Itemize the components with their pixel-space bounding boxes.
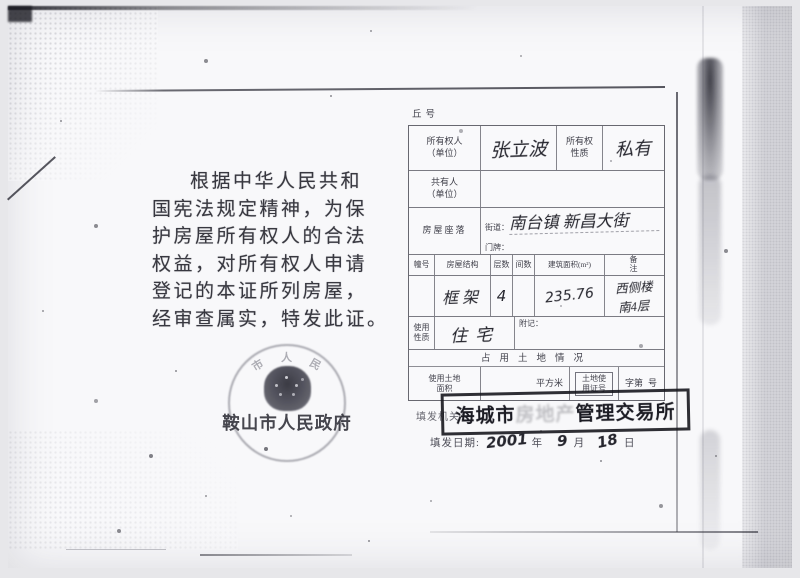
preamble-line: 护房屋所有权人的合法 — [152, 223, 408, 251]
preamble-line: 国宪法规定精神，为保 — [152, 196, 408, 224]
row-building-values: 框架 4 235.76 西侧楼 南4层 — [409, 276, 664, 317]
property-form-table: 所有权人（单位） 张立波 所有权性质 私有 共有人（单位） 房屋座落 — [408, 125, 665, 401]
land-unit-label: 平方米 — [536, 378, 563, 390]
area-handwritten: 235.76 — [544, 285, 594, 306]
header-building-no: 幢号 — [413, 261, 431, 270]
header-rooms-cell: 间数 — [513, 255, 535, 275]
header-structure-cell: 房屋结构 — [435, 255, 491, 275]
floors-value-cell: 4 — [491, 276, 513, 316]
street-value-handwritten: 南台镇 新昌大街 — [509, 208, 660, 234]
issue-month-unit: 月 — [574, 435, 586, 450]
co-owner-label: 共有人（单位） — [425, 177, 465, 200]
location-label: 房屋座落 — [422, 225, 466, 237]
owner-label: 所有权人（单位） — [425, 136, 465, 159]
issue-date-line: 填发日期: 2001 年 9 月 18 日 — [430, 432, 635, 450]
hao-label: 号 — [648, 378, 657, 390]
preamble-line: 登记的本证所列房屋， — [152, 278, 408, 306]
ownership-nature-label: 所有权性质 — [565, 136, 595, 159]
national-emblem-icon — [264, 366, 311, 411]
ownership-nature-handwritten: 私有 — [614, 134, 651, 162]
issue-month-handwritten: 9 — [557, 432, 569, 451]
usage-label: 使用性质 — [413, 323, 431, 343]
issue-date-label: 填发日期: — [430, 435, 480, 450]
header-area: 建筑面积(m²) — [548, 261, 591, 269]
co-owner-label-cell: 共有人（单位） — [409, 171, 481, 207]
co-owner-value-cell — [481, 171, 662, 207]
structure-handwritten: 框架 — [442, 283, 483, 308]
issue-day-handwritten: 18 — [595, 430, 619, 452]
issue-day-unit: 日 — [624, 435, 636, 450]
preamble-line: 权益，对所有权人申请 — [152, 251, 408, 279]
ownership-nature-value-cell: 私有 — [603, 126, 662, 170]
header-rooms: 间数 — [516, 261, 532, 270]
land-area-label: 使用土地面积 — [428, 374, 462, 394]
emblem-stars — [285, 376, 288, 379]
scanned-certificate-page: 根据中华人民共和 国宪法规定精神，为保 护房屋所有权人的合法 权益，对所有权人申… — [0, 0, 800, 578]
stamp-text-middle: 房地产 — [515, 398, 576, 426]
seal-government-name: 鞍山市人民政府 — [220, 410, 354, 435]
issue-year-handwritten: 2001 — [485, 430, 528, 452]
floors-handwritten: 4 — [497, 287, 507, 305]
header-area-cell: 建筑面积(m²) — [535, 255, 605, 275]
scan-artifact-bottom-mark-faint — [66, 549, 166, 550]
issue-year-unit: 年 — [532, 435, 544, 450]
location-label-cell: 房屋座落 — [409, 208, 481, 254]
header-building-no-cell: 幢号 — [409, 255, 435, 275]
scan-artifact-speckles — [0, 0, 2, 2]
owner-value-cell: 张立波 — [481, 126, 557, 170]
row-co-owner: 共有人（单位） — [409, 171, 664, 208]
plate-label: 门牌： — [485, 243, 509, 252]
preamble-line: 根据中华人民共和 — [152, 168, 408, 196]
seal-arc-char: 人 — [281, 349, 292, 365]
row-owner: 所有权人（单位） 张立波 所有权性质 私有 — [409, 126, 664, 171]
header-remarks: 备注 — [605, 256, 662, 274]
remarks-line2-handwritten: 南4层 — [617, 295, 650, 316]
scan-artifact-topleft-noise — [8, 6, 158, 181]
note-cell: 附记： — [515, 317, 662, 349]
scan-artifact-bottomleft-noise — [8, 430, 238, 550]
rooms-value-cell — [513, 276, 535, 316]
government-seal: 市 人 民 鞍山市人民政府 — [228, 344, 346, 462]
scan-artifact-bottom-mark — [200, 554, 352, 556]
row-location: 房屋座落 街道： 南台镇 新昌大街 门牌： — [409, 208, 664, 255]
remarks-value-cell: 西侧楼 南4层 — [605, 276, 662, 316]
header-floors-cell: 层数 — [491, 255, 513, 275]
land-section-title: 占用土地情况 — [409, 350, 664, 366]
row-building-headers: 幢号 房屋结构 层数 间数 建筑面积(m²) 备注 — [409, 255, 664, 276]
stamp-text-suffix: 管理交易所 — [575, 396, 676, 425]
street-label: 街道： — [485, 223, 509, 233]
usage-label-cell: 使用性质 — [409, 317, 435, 349]
location-value-cell: 街道： 南台镇 新昌大街 门牌： — [481, 208, 662, 254]
row-usage: 使用性质 住宅 附记： — [409, 317, 664, 350]
building-no-value-cell — [409, 276, 435, 316]
usage-value-cell: 住宅 — [435, 317, 515, 349]
constitution-preamble-text: 根据中华人民共和 国宪法规定精神，为保 护房屋所有权人的合法 权益，对所有权人申… — [152, 168, 408, 333]
scan-artifact-smudge-middle — [699, 175, 721, 325]
exchange-office-stamp: 海城市 房地产 管理交易所 — [441, 388, 691, 435]
preamble-line: 经审查属实，特发此证。 — [152, 306, 408, 334]
scan-artifact-top-edge — [8, 6, 478, 10]
area-value-cell: 235.76 — [535, 276, 605, 316]
zi-label: 字第 — [625, 378, 643, 390]
row-land-title: 占用土地情况 — [409, 350, 664, 366]
plot-number-label: 丘号 — [412, 106, 439, 120]
usage-handwritten: 住宅 — [449, 320, 500, 347]
page-right-edge-line — [676, 92, 678, 532]
structure-value-cell: 框架 — [435, 276, 491, 316]
scan-artifact-corner-blob — [8, 6, 32, 22]
owner-name-handwritten: 张立波 — [490, 134, 548, 163]
note-label: 附记： — [519, 319, 543, 329]
scan-artifact-right-band-grain — [742, 6, 792, 568]
stamp-text-prefix: 海城市 — [455, 400, 516, 428]
header-floors: 层数 — [494, 261, 510, 270]
page-bottom-edge-line — [430, 531, 758, 533]
header-structure: 房屋结构 — [447, 261, 479, 270]
header-remarks-cell: 备注 — [605, 255, 662, 275]
owner-label-cell: 所有权人（单位） — [409, 126, 481, 170]
scan-artifact-smudge-top — [697, 58, 723, 180]
ownership-nature-label-cell: 所有权性质 — [557, 126, 603, 170]
